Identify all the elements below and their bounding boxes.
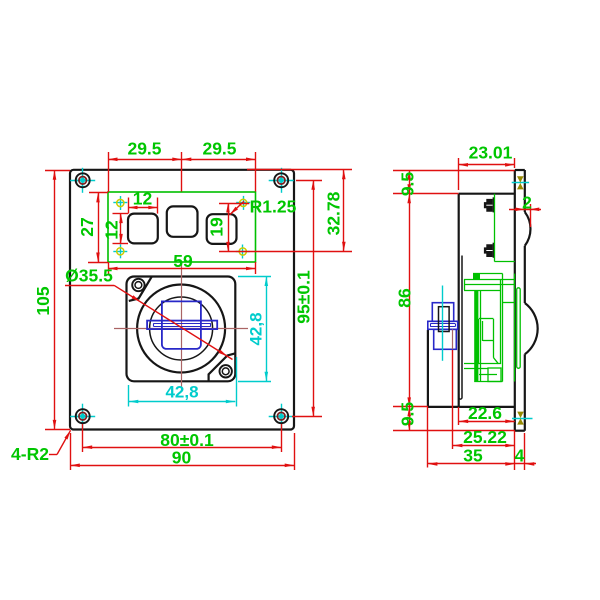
svg-text:32.78: 32.78 xyxy=(324,191,344,235)
svg-text:59: 59 xyxy=(173,251,193,271)
svg-text:23.01: 23.01 xyxy=(469,143,513,163)
svg-text:4-R2: 4-R2 xyxy=(11,444,49,464)
svg-text:R1.25: R1.25 xyxy=(250,197,297,217)
svg-text:95±0.1: 95±0.1 xyxy=(294,270,314,324)
svg-text:12: 12 xyxy=(133,189,153,209)
svg-text:9.5: 9.5 xyxy=(398,172,418,197)
svg-text:86: 86 xyxy=(395,288,415,308)
svg-text:29.5: 29.5 xyxy=(127,139,161,159)
svg-text:22.6: 22.6 xyxy=(468,403,502,423)
svg-text:27: 27 xyxy=(77,217,97,236)
svg-text:12: 12 xyxy=(101,220,121,240)
svg-text:105: 105 xyxy=(33,286,53,315)
svg-text:42,8: 42,8 xyxy=(247,312,266,345)
svg-text:4: 4 xyxy=(515,446,525,466)
svg-text:35: 35 xyxy=(463,446,483,466)
svg-text:Ø35.5: Ø35.5 xyxy=(65,266,113,286)
svg-text:2: 2 xyxy=(522,193,532,213)
svg-text:90: 90 xyxy=(172,447,192,467)
svg-text:25.22: 25.22 xyxy=(463,427,507,447)
svg-text:29.5: 29.5 xyxy=(202,139,236,159)
svg-text:9.5: 9.5 xyxy=(398,402,418,427)
svg-text:19: 19 xyxy=(207,217,227,237)
svg-text:42,8: 42,8 xyxy=(165,383,198,402)
